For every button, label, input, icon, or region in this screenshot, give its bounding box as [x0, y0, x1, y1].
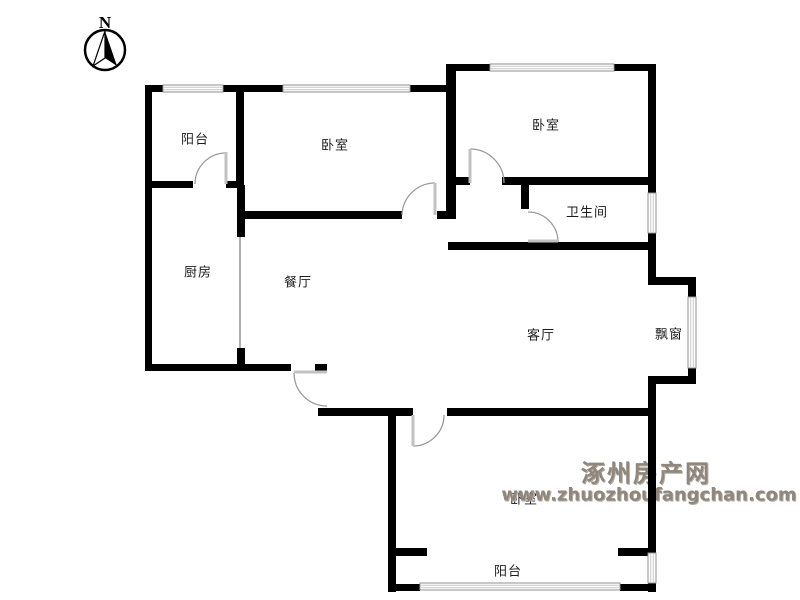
walls [145, 64, 696, 592]
room-label-kitchen: 厨房 [184, 262, 212, 281]
north-compass-icon: N [85, 13, 125, 70]
watermark-url: www.zhuozhoufangchan.com [501, 485, 796, 506]
window-balcony-bottom-icon [420, 583, 620, 590]
door-bedroom-bottom-icon [413, 415, 444, 446]
room-label-living-room: 客厅 [527, 325, 555, 344]
window-bedroom-top-middle-icon [283, 85, 410, 92]
door-bedroom-top-middle-icon [402, 183, 435, 215]
window-balcony-top-icon [163, 85, 223, 92]
door-entrance-icon [294, 372, 327, 406]
door-balcony-top-icon [195, 152, 226, 184]
room-label-bedroom-top-middle: 卧室 [321, 135, 349, 154]
room-label-dining-room: 餐厅 [284, 272, 312, 291]
room-label-bedroom-top-right: 卧室 [532, 115, 560, 134]
window-bay-icon [688, 297, 696, 368]
room-label-bay-window: 飘窗 [655, 324, 683, 343]
window-bedroom-top-right-icon [490, 64, 614, 71]
compass-north-label: N [99, 13, 112, 32]
floorplan-page: 阳台 卧室 卧室 卫生间 厨房 餐厅 客厅 飘窗 卧室 阳台 涿州房产网 www… [0, 0, 800, 600]
floorplan-canvas: N [0, 0, 800, 600]
room-label-balcony-bottom: 阳台 [494, 561, 522, 580]
door-bedroom-top-right-icon [470, 149, 504, 183]
room-label-bathroom: 卫生间 [566, 202, 608, 221]
room-label-balcony-top: 阳台 [181, 129, 209, 148]
window-balcony-bottom-side-icon [648, 553, 656, 583]
watermark-site-name: 涿州房产网 [581, 454, 711, 489]
door-bathroom-icon [528, 212, 558, 242]
window-bathroom-icon [648, 193, 656, 233]
